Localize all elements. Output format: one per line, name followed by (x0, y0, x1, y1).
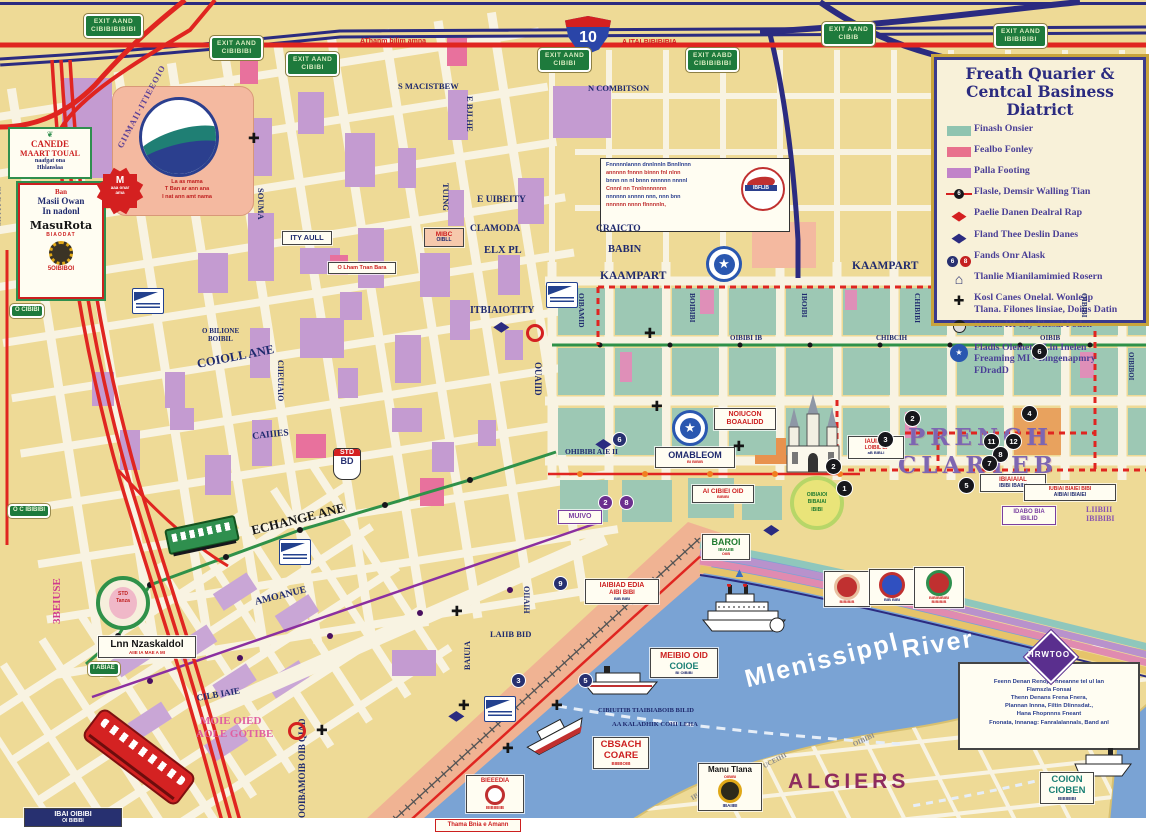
street-label: E UIBEITY (477, 196, 526, 206)
street-label: KAAMPART (600, 271, 666, 283)
legend-label: Fealbo Fonley (974, 144, 1033, 156)
marker-triangle-icon: ▲ (733, 566, 746, 579)
street-label: BAIUIA (464, 641, 472, 670)
map-plaque: MEIBIO OIDCOIOEBI OIBIBI (650, 648, 718, 678)
street-label: CRAICTO (596, 225, 641, 235)
street-label: O BILIONE (202, 328, 239, 335)
street-sign: I ABIAE (88, 662, 120, 676)
legend-label: Tlanlie Mianilamimied Rosern (974, 271, 1102, 283)
exit-sign: EXIT AANDIBIBIBIBI (994, 24, 1047, 48)
street-label: ELX PL (484, 246, 522, 257)
badge-logo-icon (834, 574, 860, 600)
street-label: AOLE GOTIBE (196, 729, 273, 740)
sign-brand: MasuRota (22, 219, 100, 232)
tour-stop: 1 (837, 481, 852, 496)
map-plaque: BIB BIBI (869, 569, 915, 605)
star-circle-icon: ★ (950, 344, 968, 362)
legend-item: Finash Onsier (944, 123, 1136, 140)
legend-item: ◆Fland Thee Deslin Danes (944, 229, 1136, 246)
legend-label: Flasle, Demsir Walling Tian (974, 186, 1090, 198)
streetcar-icon (164, 515, 240, 555)
map-plaque: Manu TlanaOIBIBIIBAIIBI (698, 763, 762, 811)
sign-text: Ban (22, 188, 100, 196)
sign-text: Masii Owan (22, 196, 100, 206)
street-label: KAAMPART (852, 261, 918, 273)
street-sign: O C IBIBIBI (8, 504, 50, 518)
hospital-cross-icon: ✚ (733, 439, 745, 453)
exit-sign: EXIT AABDCIBIBIBIBI (686, 48, 739, 72)
postal-logo-icon (132, 288, 164, 314)
legend-label: Honna III chy Thesal Foden (974, 319, 1092, 331)
hospital-cross-icon: ✚ (248, 131, 260, 145)
map-overlays: 10 Freath Quarier & Centcal Basiness Dia… (0, 0, 1152, 832)
meter-icon (953, 320, 966, 333)
map-plaque: BIEEEDIABIBIBIIB (466, 775, 524, 813)
transit-diamond-icon: ◆ (493, 319, 509, 333)
blue-diamond-icon: ◆ (952, 231, 967, 244)
legend-title-line2: Centcal Basiness Diatrict (944, 83, 1136, 119)
square-label: OIBIAIOIBIBAIAIIBIBI (807, 492, 828, 515)
route-shield-sign: STD BD (333, 448, 361, 480)
legend-label: Fands Onr Alask (974, 250, 1045, 262)
tour-stop: 6 (613, 433, 626, 446)
legend-item: 68Fands Onr Alask (944, 250, 1136, 267)
exit-sign: EXIT AANDCIBIBI (538, 48, 591, 72)
highway-label: AThanm bilim amna (360, 38, 426, 45)
street-label: 3BEIUSE (52, 578, 63, 624)
red-diamond-icon: ◆ (952, 209, 967, 222)
tour-stop: 12 (1006, 434, 1021, 449)
transit-diamond-icon: ◆ (595, 436, 611, 450)
starburst-text: Maaa onarama (97, 176, 143, 195)
sign-subtitle: MAART TOUAL (12, 149, 88, 158)
street-label: OUAIID (533, 362, 542, 396)
hospital-cross-icon: ✚ (451, 604, 463, 618)
street-label: OIBIBI IB (730, 335, 762, 342)
postal-logo-icon (279, 539, 311, 565)
street-label: OIIAIH (522, 586, 530, 614)
street-label: S MACISTBEW (398, 82, 459, 91)
badge-logo-icon (718, 779, 742, 803)
map-plaque: OMABLEOMBI BIBIB (655, 447, 735, 468)
walking-route-icon: 6 (946, 189, 972, 199)
street-label: MOIE OIED (200, 716, 261, 727)
leaf-icon: ❦ (12, 131, 88, 139)
sign-text: naafgat ona (12, 158, 88, 165)
badge-logo-icon (485, 785, 505, 805)
lee-circle: STDTanza (96, 576, 150, 630)
tour-stop: 4 (1022, 406, 1037, 421)
legend-item: ◆Paelie Danen Dealral Rap (944, 207, 1136, 224)
home-icon: ⌂ (955, 271, 963, 287)
street-label: CHIBCIH (876, 335, 907, 342)
legend-item: Fealbo Fonley (944, 144, 1136, 161)
map-plaque: BIBIBIB (824, 571, 870, 607)
street-label: BOIBIBI (689, 293, 697, 323)
map-plaque: Thama Bnia e Amann (435, 819, 521, 832)
shield-red-band (565, 16, 611, 27)
map-plaque: MUIVO (558, 510, 602, 524)
transit-diamond-icon: ◆ (448, 708, 464, 722)
postal-logo-icon (546, 282, 578, 308)
street-label: IBIBIBI (1086, 515, 1114, 523)
street-label: COIOLL ANE (196, 343, 275, 370)
map-plaque: NOIUCONBOAALIDD (714, 408, 776, 430)
map-plaque: MIBCOIBLL (424, 228, 464, 247)
street-label: BOIBIL (208, 336, 233, 343)
tour-stop: 8 (620, 496, 633, 509)
legend-label: Paelie Danen Dealral Rap (974, 207, 1082, 219)
street-label: CHIBIBI (914, 293, 922, 323)
jackson-square: OIBIAIOIBIBAIAIIBIBI (790, 476, 844, 530)
ferry-icon (580, 664, 660, 700)
highway-label: A ITALBIBIBIBIA (622, 39, 677, 46)
street-label: OIBAMID (578, 293, 586, 328)
exit-sign: EXIT AANDCIBIBIBIBIBI (84, 14, 143, 38)
street-label: AMOANUE (254, 585, 308, 607)
sunflower-icon (49, 241, 73, 265)
cross-icon: ✚ (954, 293, 965, 308)
tour-stop: 2 (599, 496, 612, 509)
hospital-cross-icon: ✚ (651, 399, 663, 413)
street-label: CAIIIES (252, 429, 289, 442)
tour-stop: 5 (579, 674, 592, 687)
tour-stop: 5 (959, 478, 974, 493)
bus-icon (80, 706, 197, 807)
sign-text: In nadonl (22, 206, 100, 216)
street-label: OLE MAIIS (0, 186, 2, 226)
badge-logo-icon (926, 570, 952, 596)
map-plaque: ITY AULL (282, 231, 332, 245)
hospital-cross-icon: ✚ (644, 326, 656, 340)
street-label: OIBIBI (1081, 293, 1089, 318)
street-label: TUING (442, 183, 451, 211)
legend-label: Finash Onsier (974, 123, 1033, 135)
sign-title: CANEDE (12, 139, 88, 149)
exit-sign: EXIT AANDCIBIB (822, 22, 875, 46)
street-label: LIIBIII (1086, 506, 1112, 514)
legend-item: 6Flasle, Demsir Walling Tian (944, 186, 1136, 203)
street-label: IBOIBI (801, 293, 809, 318)
diamond-badge: HRWTOO (1012, 638, 1086, 674)
star-shield-icon: ★ (706, 246, 742, 282)
street-label: E BJLHE (466, 96, 475, 132)
small-boat-icon (521, 708, 593, 765)
badge-logo-icon (879, 572, 905, 598)
street-label: UCEIHI (762, 752, 788, 770)
street-label: CIBIUITIB TIAIBIABOIB BILID (598, 708, 694, 715)
street-label: N COMBITSON (588, 84, 649, 93)
tour-stop: 2 (905, 411, 920, 426)
note-box: IBFLIB Fnnnnnlannn dnnlnnln Bnnllnnnannn… (600, 158, 790, 232)
market-sign: Ban Masii Owan In nadonl MasuRota BIAODA… (18, 183, 104, 299)
street-label: CLAMODA (470, 225, 520, 235)
tour-stop: 7 (982, 456, 997, 471)
street-label: OIBIB (1040, 335, 1060, 342)
tour-stop: 6 (1032, 344, 1047, 359)
street-label: OIBIBOI (1127, 352, 1134, 380)
tour-stop: 3 (512, 674, 525, 687)
legend-label: Kosl Canes Onelal. WonleapTlana. Filones… (974, 292, 1117, 315)
map-plaque: IUBIAI BIAIEI BIBIAIBIAI IBIAIEI (1024, 484, 1116, 501)
purple-swatch-icon (947, 168, 971, 178)
map-plaque: BIBIBIBIBIBIBIBIB (914, 567, 964, 608)
interstate-number: 10 (565, 29, 611, 47)
street-label: BABIN (608, 245, 641, 256)
street-label: OIBIBI (852, 732, 876, 748)
circle-label: STDTanza (109, 587, 137, 619)
logo-subtext: La as mamaT Ban ar ann anaI nat ann amt … (147, 179, 227, 201)
hospital-cross-icon: ✚ (551, 698, 563, 712)
hospital-cross-icon: ✚ (316, 723, 328, 737)
street-label: ITBIAIOTITY (470, 306, 534, 316)
street-label: CIIEUIAIO (276, 360, 284, 401)
map-plaque: IDABO BIAIBILID (1002, 506, 1056, 525)
legend: Freath Quarier & Centcal Basiness Diatri… (934, 57, 1146, 323)
map-plaque: BAROIIBAUIBOIIB (702, 534, 750, 560)
tourist-map: 10 Freath Quarier & Centcal Basiness Dia… (0, 0, 1152, 832)
legend-title-line1: Freath Quarier & (944, 65, 1136, 83)
exit-sign: EXIT AANDCIBIBIBI (210, 36, 263, 60)
starburst-badge: Maaa onarama (97, 168, 143, 214)
sign-text: 5OIBIBOI (22, 266, 100, 272)
postal-logo-icon (484, 696, 516, 722)
two-circles-icon: 68 (946, 250, 972, 267)
street-sign: O CIBIBI (10, 304, 44, 318)
legend-item: Palla Footing (944, 165, 1136, 182)
hospital-cross-icon: ✚ (502, 741, 514, 755)
red-ring-icon (526, 324, 544, 342)
map-plaque: COIONCIOBENBIBIBIBI (1040, 772, 1094, 804)
legend-label: Palla Footing (974, 165, 1030, 177)
legend-item: ✚Kosl Canes Onelal. WonleapTlana. Filone… (944, 292, 1136, 315)
legend-label: Fland Thee Deslin Danes (974, 229, 1078, 241)
tour-stop: 3 (878, 432, 893, 447)
tour-stop: 9 (554, 577, 567, 590)
sign-text: Hhlanslaa (12, 165, 88, 172)
canal-mart-sign: ❦ CANEDE MAART TOUAL naafgat ona Hhlansl… (8, 127, 92, 179)
map-plaque: CBSACHCOAREBIBBOIB (593, 737, 649, 769)
street-label: LAIIB BID (490, 630, 531, 639)
french-quarter-label-1: PRENCH (908, 424, 1053, 451)
transit-diamond-icon: ◆ (763, 522, 779, 536)
street-label: CILB IAIE (196, 686, 241, 702)
swoosh-emblem-icon (139, 97, 219, 177)
map-plaque: Lnn NzaskaldolAIIE IA MAE A MI (98, 636, 196, 658)
info-box: HRWTOO Feenn Denan Renop Thneanne tel ul… (958, 662, 1140, 750)
map-plaque: IBAI OIBIBIOI BIBIBI (24, 808, 122, 827)
sign-text: BIAODAT (22, 232, 100, 238)
map-plaque: IAIBIAD EDIAAIBI BIBIBIB BIBI (585, 579, 659, 604)
street-label: ECHANGE ANE (250, 501, 346, 537)
pink-swatch-icon (947, 147, 971, 157)
algiers-label: ALGIERS (788, 770, 909, 794)
star-shield-icon: ★ (672, 410, 708, 446)
street-label: SOUMA (257, 188, 266, 220)
tour-stop: 2 (826, 459, 841, 474)
steamboat-icon (698, 584, 790, 638)
map-plaque: AI CIBIEI OIDBIBIBI (692, 485, 754, 503)
map-plaque: O Lham Tnan Bara (328, 262, 396, 274)
legend-item: ⌂Tlanlie Mianilamimied Rosern (944, 271, 1136, 288)
stamp-logo-icon: IBFLIB (741, 167, 785, 211)
river-name-2: River (900, 625, 976, 665)
quarter-swatch-icon (947, 126, 971, 136)
exit-sign: EXIT AANDCIBIBI (286, 52, 339, 76)
red-ring-icon (288, 722, 306, 740)
street-label: AA KALADHIK COHI LEHA (612, 722, 698, 729)
map-plaque: IAUIBIBLOIBIL BIaB BIBLI (848, 436, 904, 459)
